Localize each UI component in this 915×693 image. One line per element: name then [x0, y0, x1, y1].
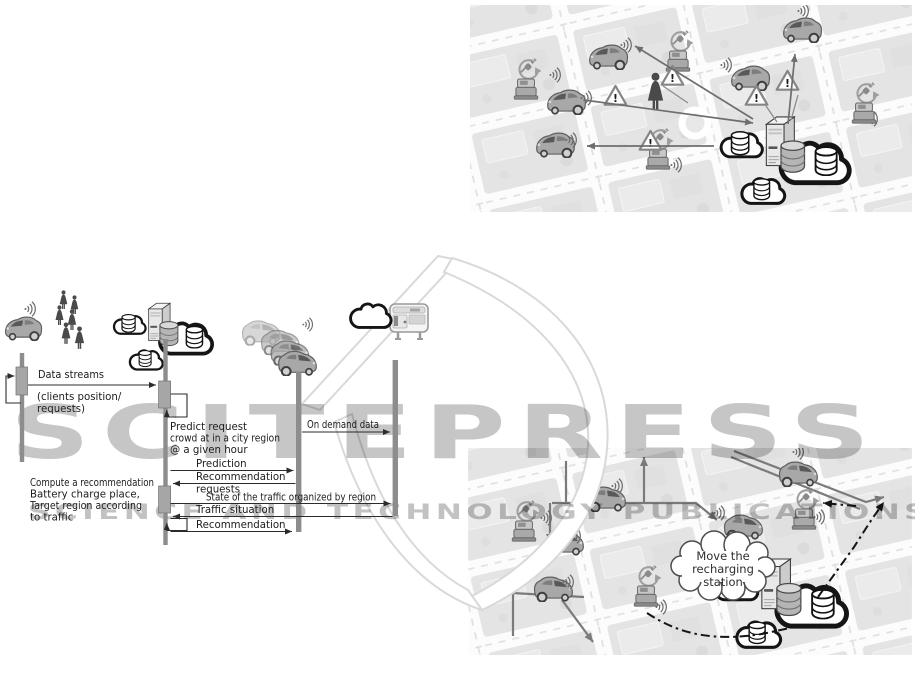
label-compute-note: Target region according — [29, 501, 142, 512]
message-labels: Data streams (clients position/ requests… — [29, 370, 379, 531]
label-recommendation-requests: Recommendation — [196, 472, 286, 483]
label-on-demand-data: On demand data — [307, 420, 379, 431]
speech-bubble-text: station — [703, 575, 743, 589]
actor-cloud-platform — [114, 303, 212, 369]
label-prediction: Prediction — [196, 459, 247, 470]
label-compute-note: Compute a recommendation — [30, 478, 154, 489]
lifeline-fleet — [296, 372, 301, 532]
label-predict: Predict request — [170, 422, 247, 433]
label-compute-note: to traffic — [30, 513, 73, 524]
speech-bubble-text: Move the — [696, 549, 749, 563]
actor-clients — [6, 290, 85, 348]
crowd-icon — [56, 290, 85, 348]
actor-traffic-service — [351, 304, 428, 339]
label-data-streams: Data streams — [38, 370, 104, 381]
activation-box — [159, 381, 171, 408]
speech-bubble-text: recharging — [692, 562, 754, 576]
figure-city-map-recommendation: Move the recharging station — [468, 448, 912, 655]
label-traffic-state: State of the traffic organized by region — [206, 493, 376, 504]
figure-sequence-diagram: Data streams (clients position/ requests… — [0, 283, 462, 561]
self-message-compute — [167, 519, 187, 531]
label-clients-note: (clients position/ — [37, 392, 122, 403]
paper-page: ! — [0, 0, 915, 693]
actor-vehicle-fleet — [243, 318, 317, 376]
car-icon — [6, 317, 42, 340]
activation-box — [16, 367, 28, 395]
wifi-icon — [302, 318, 312, 331]
label-predict: @ a given hour — [170, 445, 248, 456]
cloud-icon — [351, 304, 391, 327]
label-recommendation: Recommendation — [196, 520, 286, 531]
label-compute-note: Battery charge place, — [30, 490, 140, 501]
figure-city-map-requests — [470, 5, 912, 212]
activation-box — [159, 486, 171, 513]
lifeline-traffic — [393, 360, 398, 516]
label-traffic-situation: Traffic situation — [195, 505, 274, 516]
label-clients-note: requests) — [37, 404, 85, 415]
kiosk-icon — [390, 304, 428, 339]
wifi-icon — [24, 302, 35, 316]
label-predict: crowd at in a city region — [170, 434, 280, 445]
car-fleet-icon — [243, 321, 317, 376]
lifeline-cloud — [163, 339, 167, 545]
